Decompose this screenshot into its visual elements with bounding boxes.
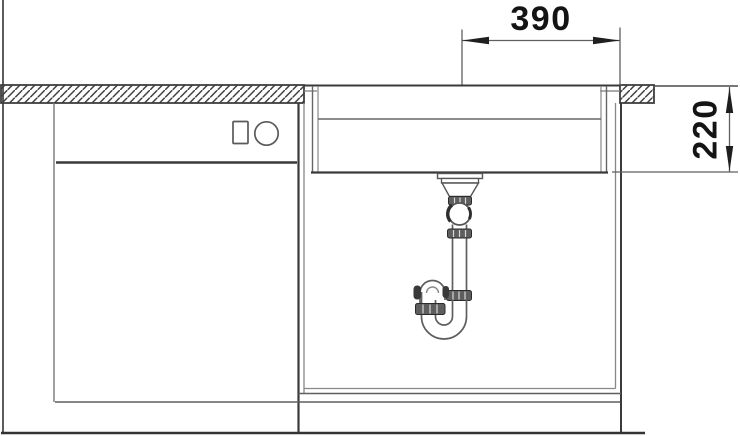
- dim-390-label: 390: [510, 0, 571, 38]
- countertop-right-hatch: [620, 85, 654, 103]
- dim-220-label: 220: [687, 98, 725, 159]
- trap-outlet-nut: [416, 304, 446, 315]
- sink-installation-drawing: 390 220: [0, 0, 740, 436]
- technical-drawing-canvas: 390 220: [0, 0, 740, 436]
- drain-flange: [438, 174, 483, 179]
- drawing-background: [0, 0, 740, 436]
- pipe-nut-upper: [448, 229, 472, 238]
- pipe-nut-lower: [447, 291, 472, 301]
- countertop-left-hatch: [1, 85, 304, 103]
- drain-ball-joint: [448, 203, 471, 225]
